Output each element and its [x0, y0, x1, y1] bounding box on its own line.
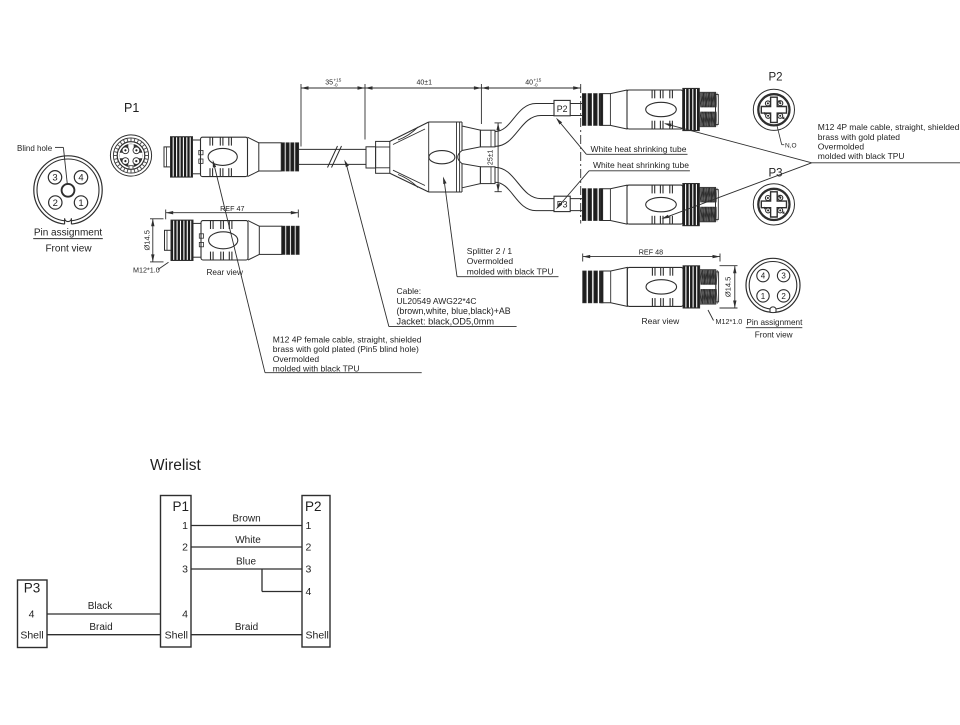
svg-text:Rear view: Rear view	[207, 268, 243, 277]
svg-text:Black: Black	[88, 601, 113, 612]
svg-text:35: 35	[325, 80, 333, 87]
svg-text:Front view: Front view	[755, 330, 793, 339]
svg-text:N,O: N,O	[785, 143, 797, 150]
svg-text:brass with gold plated (Pin5 b: brass with gold plated (Pin5 blind hole)	[273, 344, 419, 354]
svg-text:4: 4	[78, 173, 83, 184]
svg-text:Brown: Brown	[232, 514, 260, 525]
svg-text:1: 1	[78, 198, 83, 209]
svg-text:Pin assignment: Pin assignment	[746, 318, 803, 327]
svg-text:Ø14.5: Ø14.5	[723, 277, 732, 297]
svg-text:M12 4P male cable, straight, s: M12 4P male cable, straight, shielded	[818, 122, 960, 132]
svg-text:Shell: Shell	[165, 629, 188, 641]
svg-text:molded with black TPU: molded with black TPU	[467, 266, 554, 276]
svg-text:Rear view: Rear view	[642, 316, 681, 326]
svg-text:Pin assignment: Pin assignment	[34, 228, 103, 239]
svg-text:2: 2	[182, 542, 188, 554]
svg-text:2: 2	[53, 198, 58, 209]
svg-text:25±1: 25±1	[488, 149, 495, 165]
svg-text:3: 3	[306, 564, 312, 576]
svg-text:P3: P3	[24, 581, 41, 596]
svg-text:1: 1	[761, 292, 766, 301]
svg-text:P1: P1	[172, 499, 189, 514]
svg-text:White heat shrinking tube: White heat shrinking tube	[593, 160, 689, 170]
svg-text:P2: P2	[305, 499, 322, 514]
svg-text:Ø14.5: Ø14.5	[142, 230, 151, 250]
svg-text:M12 4P female cable, straight,: M12 4P female cable, straight, shielded	[273, 335, 422, 345]
svg-text:molded with black TPU: molded with black TPU	[273, 363, 360, 373]
svg-text:3: 3	[52, 173, 57, 184]
svg-text:-0: -0	[534, 83, 539, 88]
svg-text:-0: -0	[334, 83, 339, 88]
svg-text:Braid: Braid	[89, 622, 112, 633]
svg-text:Cable:: Cable:	[397, 286, 422, 296]
svg-text:White: White	[235, 535, 261, 546]
svg-text:Blue: Blue	[236, 557, 256, 568]
svg-text:3: 3	[182, 564, 188, 576]
svg-text:P1: P1	[124, 101, 139, 115]
svg-text:Wirelist: Wirelist	[150, 457, 201, 474]
svg-text:Overmolded: Overmolded	[818, 141, 865, 151]
svg-text:UL20549 AWG22*4C: UL20549 AWG22*4C	[397, 296, 477, 306]
svg-text:3: 3	[781, 272, 786, 281]
svg-text:(brown,white, blue,black)+AB: (brown,white, blue,black)+AB	[397, 306, 511, 316]
svg-text:40: 40	[525, 80, 533, 87]
svg-text:4: 4	[761, 272, 766, 281]
svg-text:REF 48: REF 48	[639, 248, 663, 257]
svg-text:2: 2	[781, 292, 786, 301]
svg-text:4: 4	[29, 609, 35, 621]
svg-text:Overmolded: Overmolded	[467, 256, 514, 266]
svg-text:4: 4	[306, 586, 312, 598]
svg-text:Front view: Front view	[45, 243, 92, 254]
svg-text:Splitter 2 / 1: Splitter 2 / 1	[467, 246, 513, 256]
svg-text:brass with gold plated: brass with gold plated	[818, 132, 900, 142]
svg-text:2: 2	[306, 542, 312, 554]
svg-text:Shell: Shell	[306, 629, 329, 641]
svg-text:Braid: Braid	[235, 622, 258, 633]
svg-text:1: 1	[306, 520, 312, 532]
svg-text:M12*1.0: M12*1.0	[716, 317, 743, 326]
svg-text:Blind hole: Blind hole	[17, 144, 53, 153]
svg-text:M12*1.0: M12*1.0	[133, 266, 160, 275]
svg-text:40±1: 40±1	[417, 80, 433, 87]
svg-text:Jacket: black,OD5,0mm: Jacket: black,OD5,0mm	[397, 316, 495, 326]
svg-text:molded with black TPU: molded with black TPU	[818, 151, 905, 161]
svg-text:4: 4	[182, 609, 188, 621]
svg-text:1: 1	[182, 520, 188, 532]
svg-text:P2: P2	[557, 104, 568, 114]
svg-text:P3: P3	[557, 200, 568, 210]
svg-text:P2: P2	[769, 72, 783, 84]
svg-text:White heat shrinking tube: White heat shrinking tube	[591, 144, 687, 154]
svg-text:Shell: Shell	[20, 629, 43, 641]
